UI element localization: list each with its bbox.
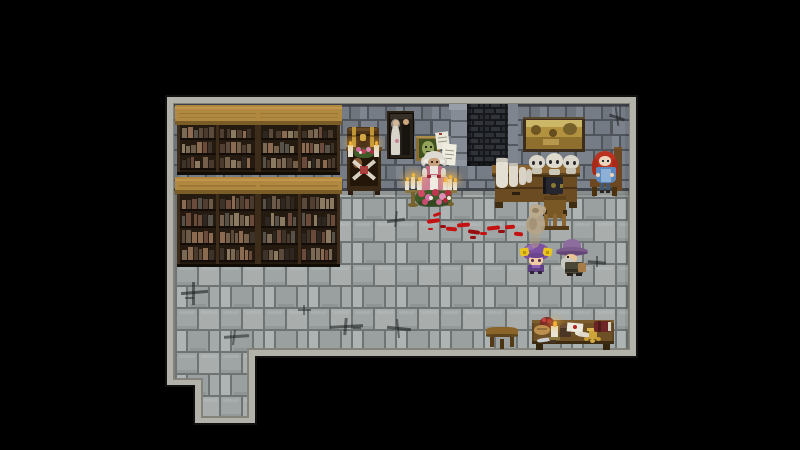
floor-crack-4 bbox=[387, 317, 412, 338]
wedding-portrait[interactable] bbox=[387, 111, 414, 159]
floor-crack-7 bbox=[298, 305, 312, 316]
wall-crack bbox=[609, 107, 626, 127]
flower-bed bbox=[414, 186, 452, 209]
cabinet-candles-flowers bbox=[347, 142, 381, 159]
landscape-painting[interactable] bbox=[523, 117, 585, 152]
bookshelf-top-right[interactable] bbox=[258, 105, 340, 175]
floor-crack-1 bbox=[181, 282, 209, 306]
floor-crack-2 bbox=[224, 330, 250, 346]
blood-trail bbox=[425, 211, 530, 241]
floor-crack-6 bbox=[588, 256, 607, 268]
ghost[interactable] bbox=[522, 202, 550, 250]
bookshelf-bottom-left[interactable] bbox=[177, 177, 258, 267]
game-viewport bbox=[0, 0, 800, 450]
stool bbox=[486, 327, 518, 349]
floor-crack-5 bbox=[387, 211, 406, 228]
bookshelf-bottom-right[interactable] bbox=[258, 177, 340, 267]
bookshelf-top-left[interactable] bbox=[177, 105, 258, 175]
treasure-table[interactable] bbox=[532, 317, 614, 350]
redhead-doll-on-chair[interactable] bbox=[588, 147, 624, 199]
oldman-npc[interactable] bbox=[556, 238, 590, 276]
floor-crack-3 bbox=[330, 316, 364, 336]
